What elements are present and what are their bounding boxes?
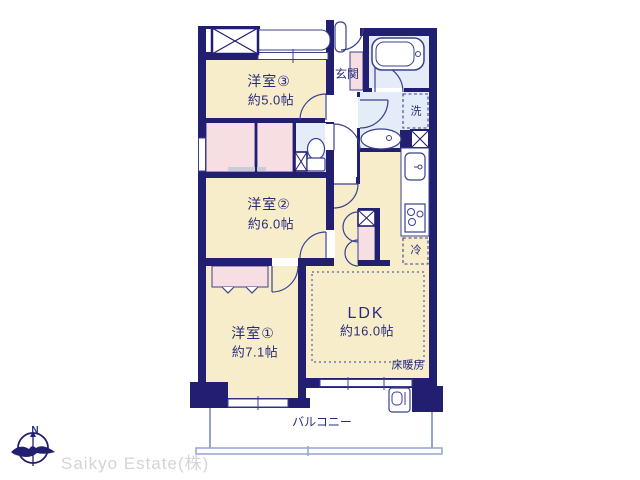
- ldk-closet: [358, 226, 375, 264]
- company-watermark: Saikyo Estate(株): [61, 449, 209, 474]
- wall-right: [429, 28, 437, 388]
- hallway-floor: [334, 98, 358, 184]
- closet-b: [257, 122, 293, 172]
- floor-heating-label: 床暖房: [392, 361, 425, 372]
- wall-bath-left: [363, 28, 369, 92]
- balcony-label: バルコニー: [292, 416, 352, 428]
- compass-icon: [11, 431, 55, 466]
- water-heater-icon: [389, 388, 410, 412]
- room3-size-label: 約5.0帖: [248, 94, 295, 107]
- wall-bath-top: [360, 28, 437, 36]
- window-left-slit: [199, 138, 206, 171]
- ldk-pipe-space-icon: [358, 210, 375, 226]
- wall-ldkcloset-bottom: [358, 260, 390, 266]
- wall-closet-bottom: [204, 172, 334, 178]
- wall-room1-right: [298, 262, 306, 383]
- closet-a: [206, 122, 255, 172]
- wall-join: [298, 383, 306, 403]
- toilet-pipe-space-icon: [295, 152, 307, 171]
- stove-icon: [405, 204, 425, 232]
- ldk-name-label: LDK: [347, 306, 384, 322]
- wall-closet-div: [255, 122, 257, 172]
- room1-name-label: 洋室①: [231, 326, 275, 340]
- pier-right: [412, 386, 443, 412]
- toilet-icon: [307, 139, 325, 172]
- bathtub-icon: [372, 38, 424, 70]
- refrigerator-label: 冷: [411, 246, 422, 257]
- room2-name-label: 洋室②: [247, 197, 291, 211]
- washbasin-icon: [361, 129, 401, 149]
- wall-room2-bottom: [198, 258, 334, 266]
- ldk-size-label: 約16.0帖: [340, 325, 394, 338]
- window-ldk: [320, 380, 412, 387]
- room2-size-label: 約6.0帖: [248, 218, 295, 231]
- room1-size-label: 約7.1帖: [232, 346, 279, 359]
- closet-rail: [228, 167, 266, 171]
- floor-plan-drawing: [0, 0, 640, 480]
- kitchen-pipe-space-icon: [411, 130, 429, 148]
- room3-name-label: 洋室③: [247, 74, 291, 88]
- wall-hall-right: [357, 128, 360, 184]
- room1-closet: [212, 266, 268, 287]
- entrance-label: 玄関: [335, 68, 359, 80]
- meter-box-icon: [212, 28, 258, 54]
- kitchen-counter: [401, 148, 429, 236]
- compass-north-label: N: [31, 426, 38, 436]
- window-sash-top: [250, 30, 330, 50]
- wall-wash-stub: [357, 92, 360, 97]
- kitchen-sink-icon: [405, 153, 425, 180]
- pier-left: [190, 382, 228, 408]
- pipe-block: [400, 130, 411, 148]
- wall-room3-bottom: [204, 118, 334, 123]
- washer-label: 洗: [411, 107, 422, 118]
- wall-left: [198, 28, 206, 408]
- floor-plan-page: { "floor_plan": { "rooms": [ {"id": "roo…: [0, 0, 640, 480]
